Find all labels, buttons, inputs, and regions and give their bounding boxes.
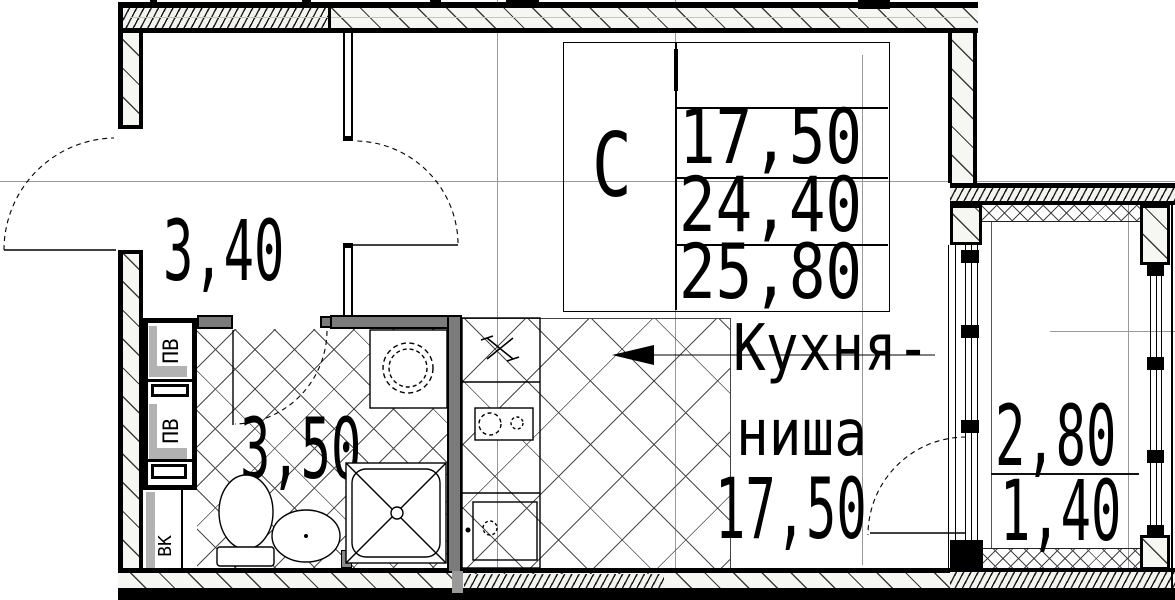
balcony-inner-line <box>991 222 992 548</box>
wall-bottom-dense-section <box>464 574 664 588</box>
wall-top-inner-line <box>130 17 970 18</box>
balcony-wall-bottom <box>950 568 1175 594</box>
balcony-glazing-left <box>965 245 978 568</box>
wall-left-lower <box>118 250 143 568</box>
balcony-door-sill-block <box>950 540 983 570</box>
shaft-damper-box-1 <box>151 384 189 397</box>
stamp-total-area: 25,80 <box>679 234 862 310</box>
balcony-corner-block-right-top <box>1140 205 1170 265</box>
kitchen-area-label: 17,50 <box>715 467 867 551</box>
top-tick-4 <box>506 0 539 7</box>
water-shaft-label: ВК <box>148 528 184 564</box>
stamp-divider-thick-segment <box>674 49 678 91</box>
kitchen-niche-floor-hatch <box>462 318 731 570</box>
top-tick-5 <box>858 0 890 9</box>
axis-line-vertical-4 <box>1128 185 1129 600</box>
balcony-top-floor-band <box>982 205 1140 222</box>
partition-hallway-upper <box>343 33 353 141</box>
shaft-divider-1 <box>148 379 192 382</box>
kitchen-name-line1: Кухня- <box>733 317 930 381</box>
glazing-right-mullion-3 <box>1147 450 1164 463</box>
balcony-area-reduced-label: 1,40 <box>1000 469 1121 553</box>
hallway-door <box>353 141 458 245</box>
vent-shaft-label-bottom: ПВ <box>148 410 194 452</box>
top-tick-2 <box>302 0 311 8</box>
wall-junction-block <box>452 571 463 593</box>
glazing-right-mullion-4 <box>1147 525 1164 538</box>
floor-plan: С 17,50 24,40 25,80 3,40 3,50 Кухня- ниш… <box>0 0 1175 600</box>
kitchen-sill-lines <box>948 245 956 568</box>
balcony-corner-block-left-top <box>950 205 982 245</box>
glazing-left-mullion-2 <box>961 325 979 338</box>
balcony-corner-block-right-bottom <box>1140 535 1170 570</box>
bathroom-area-label: 3,50 <box>240 407 361 491</box>
glazing-left-mullion-1 <box>961 250 979 263</box>
stamp-room-type-letter: С <box>592 122 632 210</box>
shower-side-stub <box>341 550 352 568</box>
shaft-damper-box-2 <box>151 464 187 479</box>
balcony-outer-edge-line <box>1171 205 1173 595</box>
balcony-wall-top <box>950 183 1175 205</box>
bathroom-wall-top-right <box>330 315 462 329</box>
wall-bottom-outer-strip <box>118 594 1175 600</box>
hallway-area-label: 3,40 <box>163 209 284 293</box>
wall-top-dense-section <box>123 8 330 28</box>
wall-right-main <box>948 33 977 183</box>
entrance-door <box>4 138 116 250</box>
wall-top-junction <box>328 2 331 33</box>
glazing-left-mullion-3 <box>961 420 979 433</box>
bathroom-wall-right <box>447 315 462 573</box>
partition-hallway-lower <box>343 243 353 317</box>
vent-shaft-label-top: ПВ <box>148 330 194 372</box>
top-tick-3 <box>430 0 441 5</box>
kitchen-name-line2: ниша <box>736 402 867 466</box>
top-tick-1 <box>150 0 157 8</box>
wall-left-upper <box>118 33 143 129</box>
balcony-glazing-right <box>1150 265 1162 535</box>
bathroom-wall-top-stub <box>197 315 233 329</box>
shaft-divider-2 <box>148 459 192 462</box>
glazing-right-mullion-2 <box>1147 357 1164 370</box>
glazing-right-mullion-1 <box>1147 263 1164 276</box>
